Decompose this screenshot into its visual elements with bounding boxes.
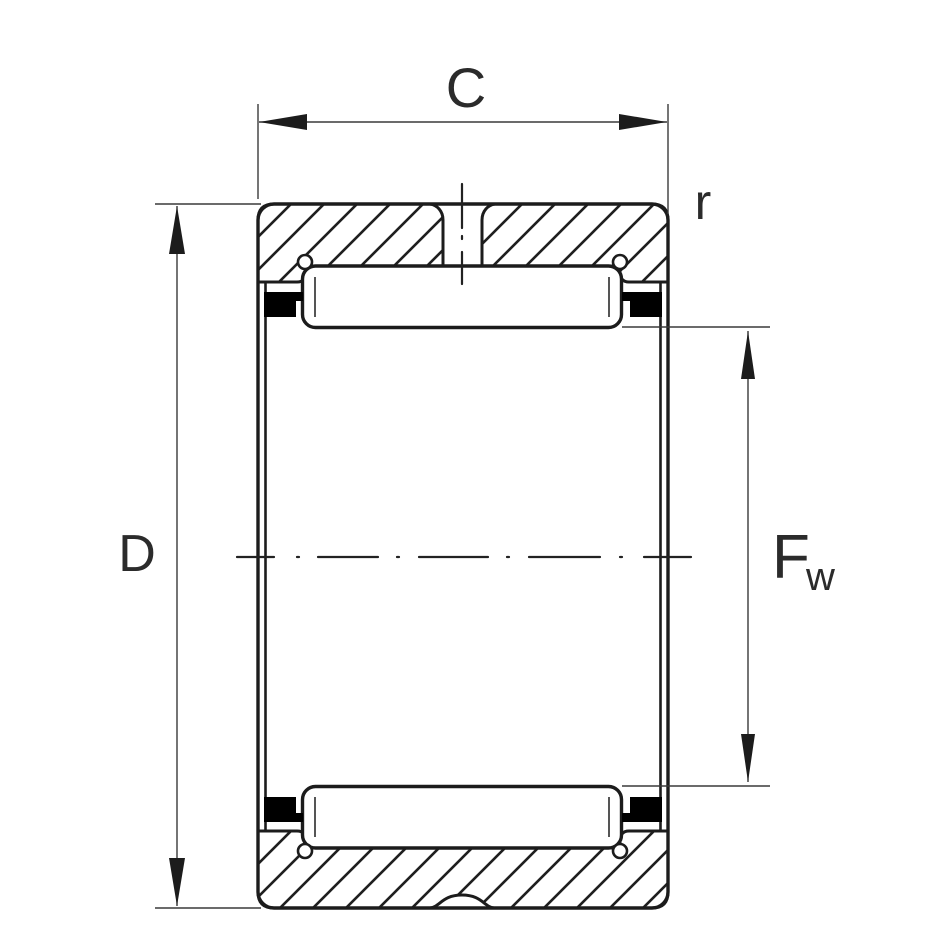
cage-rivet-bottom-left	[298, 844, 312, 858]
needle-roller-bottom	[303, 787, 622, 849]
label-chamfer-radius-r: r	[695, 174, 712, 230]
bearing-cross-section-diagram: C D F w r	[0, 0, 950, 950]
label-width-c: C	[446, 56, 486, 119]
bearing-drawing-canvas: C D F w r	[0, 0, 950, 950]
dim-c-arrow-right	[619, 114, 667, 130]
cage-rivet-top-left	[298, 255, 312, 269]
dim-fw-arrow-top	[741, 331, 755, 379]
cage-rivet-bottom-right	[613, 844, 627, 858]
label-raceway-diameter-f: F	[772, 523, 810, 592]
dim-d-arrow-bottom	[169, 858, 185, 906]
dim-fw-arrow-bottom	[741, 734, 755, 782]
label-outer-diameter-d: D	[118, 525, 156, 583]
dim-c-arrow-left	[259, 114, 307, 130]
dim-d-arrow-top	[169, 206, 185, 254]
cage-rivet-top-right	[613, 255, 627, 269]
label-raceway-diameter-w-subscript: w	[805, 555, 835, 599]
